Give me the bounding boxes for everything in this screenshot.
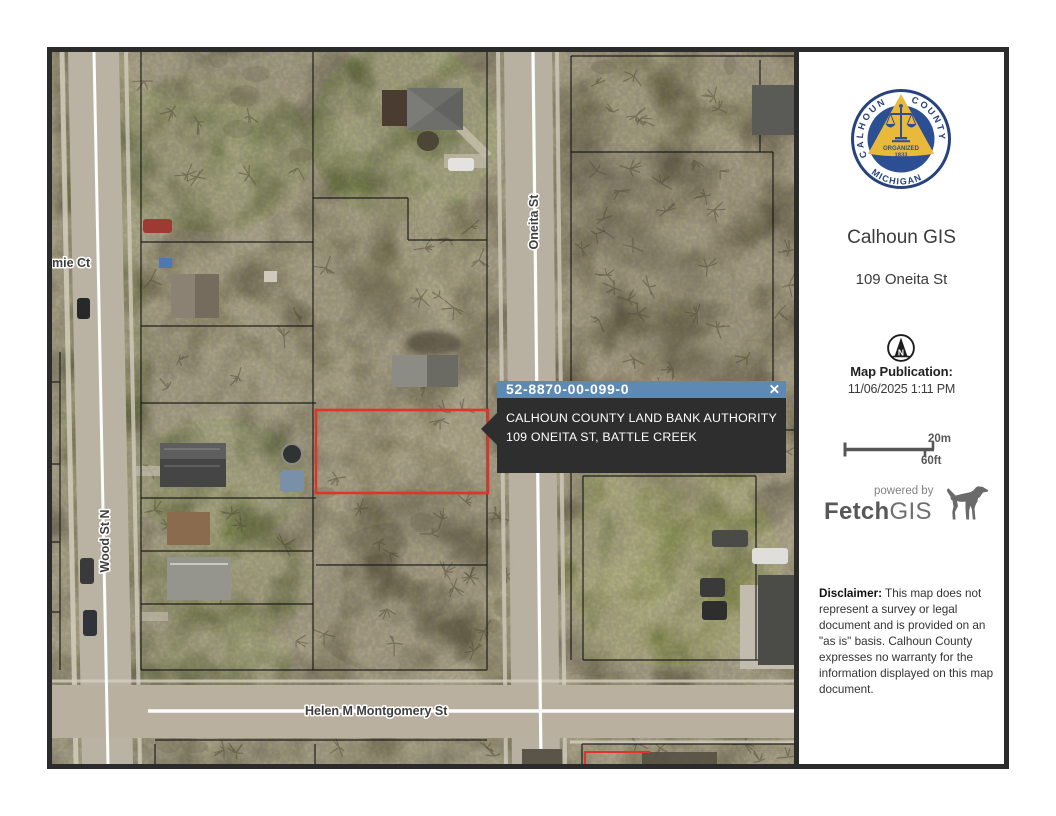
- svg-text:N: N: [898, 348, 904, 358]
- svg-text:20m: 20m: [928, 433, 951, 445]
- svg-text:mie Ct: mie Ct: [52, 256, 91, 270]
- svg-text:1833: 1833: [895, 153, 909, 159]
- svg-text:Wood St N: Wood St N: [98, 510, 112, 573]
- svg-text:60ft: 60ft: [921, 455, 942, 466]
- svg-text:Helen M Montgomery St: Helen M Montgomery St: [305, 704, 448, 718]
- svg-text:ORGANIZED: ORGANIZED: [883, 146, 920, 152]
- svg-text:Oneita St: Oneita St: [527, 194, 541, 250]
